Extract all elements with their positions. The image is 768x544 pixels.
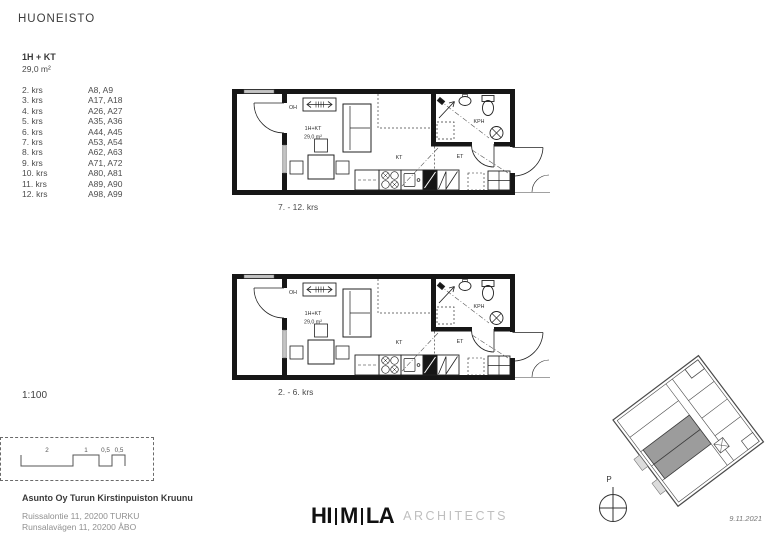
logo-divider-bar [335,508,337,525]
room-label-bathroom: KPH [474,119,485,125]
compass-cross [600,487,627,522]
scale-bar-label: 1 [84,447,88,454]
list-item: 4. krsA26, A27 [22,106,123,116]
room-label-type: 1H+KT [305,126,322,132]
drawing-date: 9.11.2021 [698,514,762,523]
list-item: 3. krsA17, A18 [22,95,123,105]
list-item: 8. krsA62, A63 [22,147,123,157]
room-label-entry: ET [457,339,465,345]
room-label-living: OH [289,105,297,111]
room-label-living: OH [289,290,297,296]
room-label-kitchen: KT [396,340,404,346]
logo-divider-bar [361,508,363,525]
room-label-kitchen: KT [396,155,404,161]
scale-bar-frame: 2 1 0,5 0,5 [0,437,154,481]
scale-bar: 2 1 0,5 0,5 [9,442,145,474]
floor-plan-upper: OH 1H+KT 29,0 m² KT KPH ET [232,89,554,195]
list-item: 2. krsA8, A9 [22,85,123,95]
page-title: HUONEISTO [18,13,95,25]
plan-caption-upper: 7. - 12. krs [278,202,318,212]
logo-wordmark: HI M LA [311,503,394,529]
scale-ratio: 1:100 [22,390,47,401]
plan-caption-lower: 2. - 6. krs [278,387,313,397]
scale-bar-label: 0,5 [115,447,124,454]
list-item: 5. krsA35, A36 [22,116,123,126]
scale-bar-label: 2 [45,447,49,454]
architect-logo: HI M LA ARCHITECTS [311,503,508,529]
list-item: 12. krsA98, A99 [22,189,123,199]
north-label: P [606,475,611,484]
north-compass: P [592,468,644,532]
scale-bar-profile [21,455,125,466]
project-address-sv: Runsalavägen 11, 20200 ÅBO [22,522,136,532]
project-name: Asunto Oy Turun Kirstinpuiston Kruunu [22,493,193,503]
floor-plan-drawing [232,89,550,195]
drawing-sheet: HUONEISTO 1H + KT 29,0 m² 2. krsA8, A9 3… [0,0,768,544]
scale-bar-label: 0,5 [101,447,110,454]
floor-plan-lower: OH 1H+KT 29,0 m² KT KPH ET [232,274,554,380]
list-item: 11. krsA89, A90 [22,179,123,189]
list-item: 9. krsA71, A72 [22,158,123,168]
list-item: 10. krsA80, A81 [22,168,123,178]
room-label-area: 29,0 m² [304,320,322,326]
room-label-bathroom: KPH [474,304,485,310]
list-item: 6. krsA44, A45 [22,127,123,137]
room-label-area: 29,0 m² [304,135,322,141]
apartment-area: 29,0 m² [22,64,51,74]
floor-plan-drawing [232,274,550,380]
apartment-type: 1H + KT [22,52,56,62]
list-item: 7. krsA53, A54 [22,137,123,147]
logo-suffix: ARCHITECTS [403,509,508,523]
room-label-type: 1H+KT [305,311,322,317]
room-label-entry: ET [457,154,465,160]
floor-unit-list: 2. krsA8, A9 3. krsA17, A18 4. krsA26, A… [22,85,123,199]
project-address-fi: Ruissalontie 11, 20200 TURKU [22,511,139,521]
